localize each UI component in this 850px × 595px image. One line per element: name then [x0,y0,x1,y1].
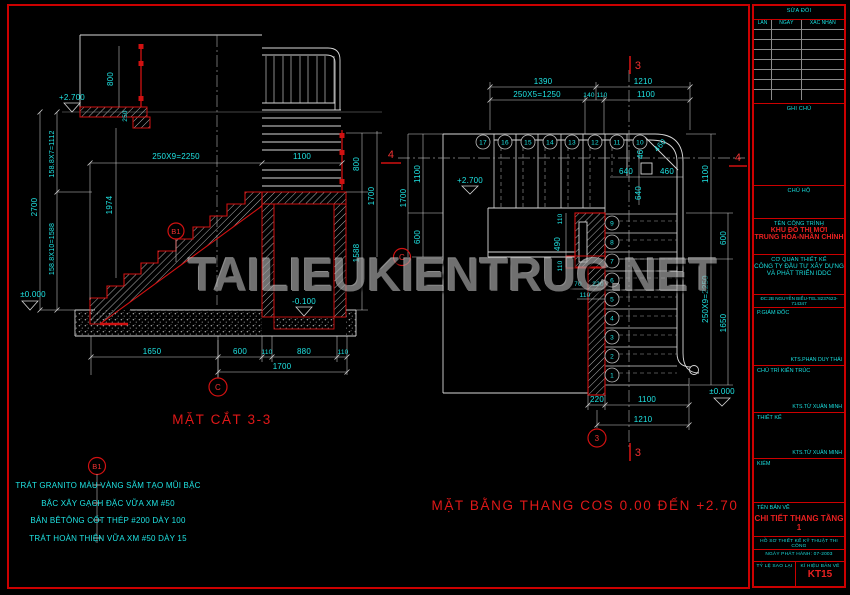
designer-address: ĐC:2B NGUYỄN BIỂU-TEL:8237623-714347 [754,294,844,306]
dim-label: 1390 [534,77,553,86]
dim-label: 1100 [293,152,311,161]
detail-bubble-label: B1 [92,462,102,471]
project-label: TÊN CÔNG TRÌNH [754,219,844,227]
dim-label: 600 [413,230,422,244]
level-symbol [714,398,730,406]
dim-label: 1650 [143,347,162,356]
dim-label: 880 [297,347,311,356]
drawing-code: KT15 [796,569,844,580]
dim-label: 1100 [637,90,655,99]
project-name: KHU ĐÔ THỊ MỚI [754,227,844,234]
tread-number: 3 [610,335,614,342]
dim-label: 1700 [273,362,292,371]
dim-label: 110 [597,92,608,99]
level-symbol [462,186,478,194]
design-label: THIẾT KẾ [754,413,844,421]
dim-label: 1650 [719,313,728,332]
section-cut-marker: 3 [635,447,641,459]
dim-label: 110 [338,349,349,356]
tread-number: 1 [610,373,614,380]
dim-label: 1210 [634,415,653,424]
dim-label: 250X5=1250 [513,90,561,99]
dim-label: 250 [122,110,129,122]
dim-label: 158.8X7=1112 [49,130,56,177]
tread-number: 11 [613,140,620,147]
tread-number: 8 [610,240,614,247]
dim-label: 250X9=2250 [152,152,200,161]
rev-col-header: XÁC NHẬN [802,20,844,30]
designer-name: VÀ PHÁT TRIỂN IDDC [754,270,844,277]
rev-col-header: LẦN [754,20,772,30]
dim-label: 640 [634,186,643,200]
section-view: +2.700 ±0.000 -0.100 800 250 158.8X7=111… [20,35,401,427]
tread-number: 17 [479,140,487,147]
plan-title: MẶT BẰNG THANG COS 0.00 ĐẾN +2.70 [431,498,738,513]
revision-header: SỬA ĐỔI [754,6,844,14]
note-line: TRÁT HOÀN THIỆN VỮA XM #50 DÀY 15 [29,534,187,543]
dim-label: 800 [106,72,115,86]
dim-label: 2700 [30,197,39,216]
cad-drawing-sheet: +2.700 ±0.000 -0.100 800 250 158.8X7=111… [0,0,850,595]
plan-treads-top-dashed [501,140,612,208]
level-label: ±0.000 [709,387,735,396]
watermark: TAILIEUKIENTRUC.NET [188,247,717,302]
dim-label: 220 [590,395,604,404]
dossier-label: HỒ SƠ THIẾT KẾ KỸ THUẬT THI CÔNG [754,537,844,549]
project-name: TRUNG HÒA-NHÂN CHÍNH [754,234,844,241]
chief-architect-name: KTS.TỪ XUÂN MINH [792,404,842,410]
dim-label: 158.8X10=1588 [49,223,56,275]
dim-label: 110 [262,349,273,356]
note-line: BẢN BÊTÔNG CỐT THÉP #200 DÀY 100 [30,515,186,525]
level-label: +2.700 [457,176,483,185]
check-label: KIỂM [754,459,844,467]
dim-label: 600 [719,231,728,245]
rev-col-header: NGÀY [772,20,802,30]
design-name: KTS.TỪ XUÂN MINH [792,450,842,456]
section-balusters [266,56,334,103]
tread-number: 10 [636,140,644,147]
chief-architect-label: CHỦ TRÌ KIẾN TRÚC [754,366,844,374]
detail-bubble-label: B1 [171,227,181,236]
dim-label: 1100 [701,165,710,183]
dim-label: 460 [652,137,668,154]
dim-label: 1974 [105,195,114,214]
revision-table: LẦN NGÀY XÁC NHẬN [754,20,844,104]
tread-numbers-top: 17 16 15 14 13 12 11 10 [476,135,647,149]
dim-label: 640 [619,167,633,176]
dim-label: 460 [660,167,674,176]
dim-label: 1100 [413,165,422,183]
grid-bubble-label: 3 [595,434,600,443]
designer-name: CÔNG TY ĐẦU TƯ XÂY DỰNG [754,263,844,270]
note-line: TRÁT GRANITO MÀU VÀNG SẪM TẠO MŨI BẬC [15,481,200,490]
issue-date: NGÀY PHÁT HÀNH: 07-2003 [754,550,844,557]
scale-label: TỶ LỆ SAO LẠI [754,562,795,569]
tread-number: 12 [591,140,599,147]
tread-number: 15 [524,140,532,147]
dim-label: 600 [233,347,247,356]
section-cut-marker: 4 [388,149,394,161]
tread-number: 14 [546,140,554,147]
drawing-title-label: TÊN BẢN VẼ [754,503,844,511]
level-label: +2.700 [59,93,85,102]
grid-bubble-label: C [215,383,221,392]
designer-label: CƠ QUAN THIẾT KẾ [754,255,844,263]
railing-posts [139,44,345,190]
tread-number: 4 [610,316,614,323]
section-title: MẶT CẮT 3-3 [172,412,272,427]
title-block: SỬA ĐỔI LẦN NGÀY XÁC NHẬN GHI CHÚ CHỦ HỘ… [752,4,846,588]
note-line: BẬC XÂY GẠCH ĐẶC VỮA XM #50 [41,499,175,508]
tread-number: 16 [501,140,509,147]
tread-number: 2 [610,354,614,361]
notes-block: B1 TRÁT GRANITO MÀU VÀNG SẪM TẠO MŨI BẬC… [15,458,200,544]
deputy-director-name: KTS.PHAN DUY THÁI [791,357,842,363]
dim-label: 800 [352,157,361,171]
dim-label: 110 [557,213,564,224]
dim-label: 1100 [638,395,656,404]
code-label: KÍ HIỆU BẢN VẼ [796,562,844,569]
tread-number: 9 [610,221,614,228]
dim-label: 140 [583,92,595,99]
drawing-title: CHI TIẾT THANG TẦNG 1 [754,514,844,532]
dim-label: 1210 [634,77,653,86]
section-cut-marker: 4 [735,152,741,164]
owner-label: CHỦ HỘ [754,186,844,194]
dim-label: 1700 [367,186,376,205]
deputy-director-label: P.GIÁM ĐỐC [754,308,844,316]
tread-number: 13 [568,140,576,147]
level-label: ±0.000 [20,290,46,299]
section-cut-marker: 3 [635,60,641,72]
dim-label: 1700 [399,188,408,207]
plan-stair-wall [566,213,605,395]
notes-label: GHI CHÚ [754,104,844,112]
